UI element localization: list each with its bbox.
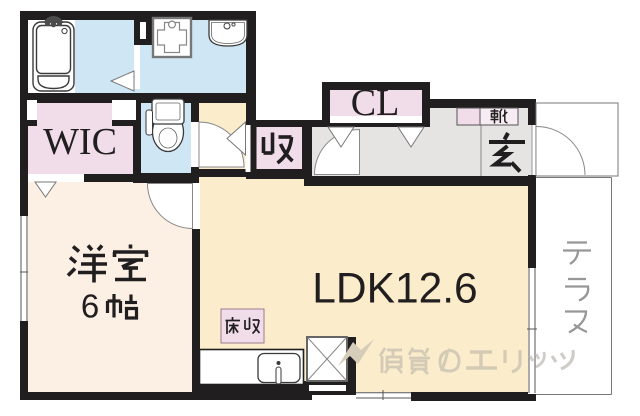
svg-text:6: 6: [81, 288, 99, 325]
svg-text:LDK12.6: LDK12.6: [312, 266, 477, 313]
svg-text:CL: CL: [351, 82, 400, 124]
svg-text:WIC: WIC: [43, 121, 117, 163]
